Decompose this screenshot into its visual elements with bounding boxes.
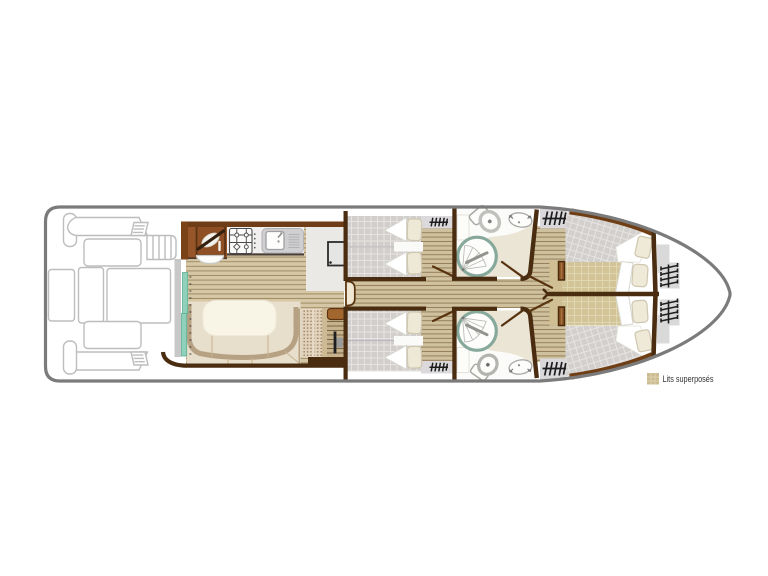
svg-text:Lits superposés: Lits superposés: [663, 374, 714, 384]
